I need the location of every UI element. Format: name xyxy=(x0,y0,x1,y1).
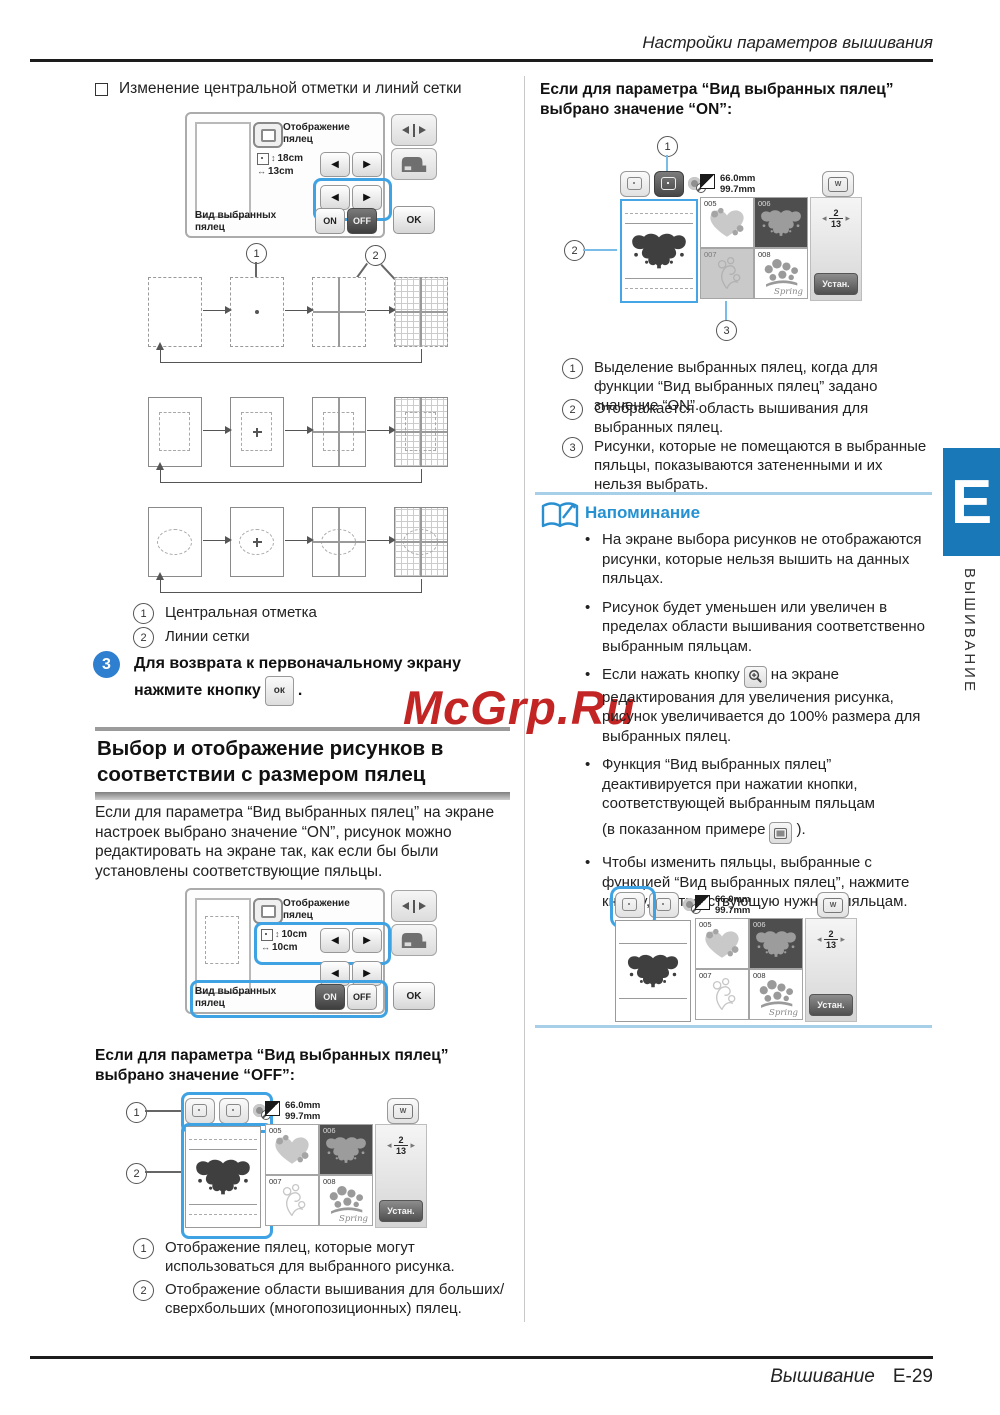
area-dash-bottom xyxy=(189,1214,257,1215)
page-total: 13 xyxy=(396,1146,406,1156)
width-arrow-icon: ↔ xyxy=(261,941,270,954)
frame-shape-grid xyxy=(394,507,448,577)
heart-design-icon xyxy=(705,204,749,242)
pattern-tile-005: 005 xyxy=(700,197,754,248)
footer-page-number: E-29 xyxy=(893,1366,933,1387)
dimension-icon xyxy=(695,895,710,910)
legend-number: 2 xyxy=(133,627,154,648)
move-right-icon xyxy=(419,902,426,910)
footer-rule xyxy=(30,1356,933,1359)
frame-cross-lines xyxy=(312,277,366,347)
pattern-tile-007: 007 xyxy=(695,969,749,1020)
width-arrow-icon: ↔ xyxy=(257,165,266,178)
hoop-w-button: W xyxy=(822,171,854,197)
pattern-tile-007-disabled: 007 xyxy=(700,248,754,299)
return-arrow xyxy=(160,349,422,363)
size-icon xyxy=(261,929,273,941)
floral-design-icon xyxy=(705,975,739,1015)
pattern-tile-008: 008Spring xyxy=(319,1175,373,1226)
return-arrow xyxy=(160,579,422,593)
grid-next-button: ▶ xyxy=(352,185,382,210)
flow-arrow xyxy=(367,310,389,311)
selected-hoop-view-label: Вид выбранных пялец xyxy=(195,210,307,234)
manual-page: Настройки параметров вышивания E ВЫШИВАН… xyxy=(0,0,1000,1415)
legend-item-off-1: 1 Отображение пялец, которые могут испол… xyxy=(133,1238,518,1276)
callout-1-line xyxy=(666,155,668,171)
area-dash-top xyxy=(625,213,693,214)
flow-arrow xyxy=(285,310,307,311)
heart-design-icon xyxy=(700,925,744,963)
hoop-w-icon: W xyxy=(393,1104,413,1119)
hoop-frame-icon xyxy=(656,898,671,911)
off-case-heading: Если для параметра “Вид выбранных пялец”… xyxy=(95,1046,515,1086)
callout-2: 2 xyxy=(126,1163,147,1184)
zoom-button xyxy=(744,666,767,688)
needle-bar-icon xyxy=(413,124,415,137)
page-next-icon: ▸ xyxy=(846,213,851,224)
frame-area-empty xyxy=(148,397,202,467)
ornament-design-icon xyxy=(758,207,804,239)
page-header-title: Настройки параметров вышивания xyxy=(530,33,933,53)
set-button: Устан. xyxy=(809,994,853,1016)
checkbox-heading-text: Изменение центральной отметки и линий се… xyxy=(119,80,462,98)
legend-number: 2 xyxy=(562,399,583,420)
side-panel: ◂ 213 ▸ Устан. xyxy=(805,918,857,1022)
size-next-button: ▶ xyxy=(352,152,382,177)
pattern-select-screen-on: 66.0mm99.7mm 005 006 007 008Spring ◂ 213… xyxy=(620,171,860,301)
page-next-icon: ▸ xyxy=(841,934,846,945)
section-title: Выбор и отображение рисунков в соответст… xyxy=(97,736,510,788)
pattern-tile-005: 005 xyxy=(695,918,749,969)
off-button-selected: OFF xyxy=(347,208,377,234)
flow-arrow xyxy=(203,540,225,541)
return-arrow xyxy=(160,469,422,483)
settings-panel: Отображение пялец ↕18cm ↔13cm ◀ ▶ ◀ ▶ Ви… xyxy=(185,112,385,238)
hoop-frame-icon xyxy=(661,177,676,190)
section-tab: E xyxy=(943,448,1000,556)
note-bullet: Функция “Вид выбранных пялец” деактивиру… xyxy=(585,755,932,844)
embroidery-band xyxy=(189,1149,257,1205)
flow-arrow xyxy=(203,310,225,311)
hoop-w-icon: W xyxy=(823,898,843,913)
pattern-size: 66.0mm99.7mm xyxy=(700,173,755,195)
step-instruction: Для возврата к первоначальному экрану на… xyxy=(134,652,506,706)
grid-prev-button: ◀ xyxy=(320,961,350,986)
legend-item-center-mark: 1 Центральная отметка xyxy=(133,603,503,624)
pattern-size: 66.0mm99.7mm xyxy=(265,1100,320,1122)
flow-arrow xyxy=(285,540,307,541)
section-intro: Если для параметра “Вид выбранных пялец”… xyxy=(95,803,507,881)
pattern-grid: 005 006 007 008Spring xyxy=(265,1124,373,1226)
section-tab-letter: E xyxy=(951,467,992,538)
sewing-machine-icon xyxy=(399,154,429,175)
pattern-tile-005: 005 xyxy=(265,1124,319,1175)
embroidery-area-outline xyxy=(205,916,239,964)
hoop-frame-icon xyxy=(622,898,637,911)
settings-screen-2: Отображение пялец ↕10cm ↔10cm ◀ ▶ ◀ ▶ Ви… xyxy=(185,888,437,1012)
off-button: OFF xyxy=(347,984,377,1010)
callout-2: 2 xyxy=(564,240,585,261)
pattern-size: 66.0mm99.7mm xyxy=(695,894,750,916)
frame-shape-empty xyxy=(148,507,202,577)
sewing-machine-button xyxy=(391,148,437,180)
hoop-w-button: W xyxy=(817,892,849,918)
legend-number: 2 xyxy=(133,1280,154,1301)
note-title: Напоминание xyxy=(585,503,700,523)
side-panel: ◂ 213 ▸ Устан. xyxy=(375,1124,427,1228)
heart-design-icon xyxy=(270,1131,314,1169)
checkbox-icon xyxy=(95,83,108,96)
hoop-large-button xyxy=(185,1098,215,1124)
selected-hoop-button xyxy=(769,822,792,844)
spring-design-icon xyxy=(759,257,803,291)
hoop-preview xyxy=(195,898,251,994)
callout-1: 1 xyxy=(657,136,678,157)
pattern-tile-007: 007 xyxy=(265,1175,319,1226)
step-number-badge: 3 xyxy=(93,651,120,678)
size-prev-button: ◀ xyxy=(320,928,350,953)
magnifier-plus-icon xyxy=(748,669,763,684)
callout-2: 2 xyxy=(365,245,386,266)
legend-item-on-2: 2 Отображается область вышивания для выб… xyxy=(562,399,934,437)
hoop-small-button-selected xyxy=(654,171,684,197)
area-dash-top xyxy=(189,1139,257,1140)
set-button: Устан. xyxy=(379,1200,423,1222)
hoop-large-button xyxy=(620,171,650,197)
hoop-icon xyxy=(253,898,283,924)
height-arrow-icon: ↕ xyxy=(275,928,280,941)
pattern-grid: 005 006 007 008Spring xyxy=(695,918,803,1020)
hoop-large-button xyxy=(615,892,645,918)
hoop-choice-buttons xyxy=(620,171,706,197)
legend-number: 1 xyxy=(133,1238,154,1259)
pattern-tile-006-selected: 006 xyxy=(754,197,808,248)
hoop-icon xyxy=(253,122,283,148)
pattern-tile-008: 008Spring xyxy=(754,248,808,299)
hoop-frame-icon xyxy=(192,1104,207,1117)
frame-shape-cross-lines xyxy=(312,507,366,577)
frame-empty xyxy=(148,277,202,347)
page-navigation: ◂ 213 ▸ xyxy=(806,929,856,950)
legend-number: 3 xyxy=(562,437,583,458)
flow-arrow xyxy=(367,540,389,541)
frame-area-center-mark xyxy=(230,397,284,467)
page-total: 13 xyxy=(826,940,836,950)
move-right-icon xyxy=(419,126,426,134)
ornament-design xyxy=(624,952,682,990)
grid-prev-button: ◀ xyxy=(320,185,350,210)
on-case-heading: Если для параметра “Вид выбранных пялец”… xyxy=(540,80,932,120)
page-current: 2 xyxy=(829,208,842,219)
page-next-icon: ▸ xyxy=(411,1140,416,1151)
hoop-inner-icon xyxy=(261,129,276,142)
callout-1-line xyxy=(145,1110,183,1112)
ornament-design-icon xyxy=(753,928,799,960)
size-icon xyxy=(257,153,269,165)
note-bullet: На экране выбора рисунков не отображаютс… xyxy=(585,530,932,589)
footer: ВышиваниеE-29 xyxy=(530,1366,933,1388)
sewing-machine-icon xyxy=(399,930,429,951)
on-button-selected: ON xyxy=(315,984,345,1010)
callout-1: 1 xyxy=(126,1102,147,1123)
size-next-button: ▶ xyxy=(352,928,382,953)
footer-section: Вышивание xyxy=(770,1366,875,1387)
pattern-select-screen-off: 66.0mm99.7mm 005 006 007 008Spring ◂ 213… xyxy=(185,1098,425,1228)
area-dash-bottom xyxy=(625,288,693,289)
hoop-inner-icon xyxy=(261,905,276,918)
legend-number: 1 xyxy=(133,603,154,624)
pattern-preview xyxy=(185,1126,261,1228)
ok-button: OK xyxy=(393,982,435,1010)
section-bar-top xyxy=(95,727,510,731)
hoop-preview xyxy=(195,122,251,218)
hoop-size-value: ↕18cm ↔13cm xyxy=(257,152,303,178)
dimension-icon xyxy=(700,174,715,189)
needle-bar-icon xyxy=(413,900,415,913)
ornament-design-icon xyxy=(323,1134,369,1166)
settings-screen-1: Отображение пялец ↕18cm ↔13cm ◀ ▶ ◀ ▶ Ви… xyxy=(185,112,437,236)
hoop-frame-icon xyxy=(627,177,642,190)
note-bullet: Если нажать кнопкуна экране редактирован… xyxy=(585,665,932,746)
hoop-w-icon: W xyxy=(828,177,848,192)
page-current: 2 xyxy=(824,929,837,940)
legend-item-off-2: 2 Отображение области вышивания для боль… xyxy=(133,1280,518,1318)
frame-shape-center-mark xyxy=(230,507,284,577)
callout-3-line xyxy=(725,301,727,320)
hoop-mini-icon xyxy=(774,828,787,839)
frame-area-cross-lines xyxy=(312,397,366,467)
embroidery-band xyxy=(625,223,693,279)
pattern-preview-highlighted xyxy=(620,199,698,303)
hoop-size-value: ↕10cm ↔10cm xyxy=(261,928,307,954)
selected-hoop-view-label: Вид выбранных пялец xyxy=(195,986,307,1010)
flow-arrow xyxy=(367,430,389,431)
pattern-tile-006-selected: 006 xyxy=(319,1124,373,1175)
callout-3: 3 xyxy=(716,320,737,341)
sewing-machine-button xyxy=(391,924,437,956)
section-bar-bottom xyxy=(95,792,510,800)
ok-button: OK xyxy=(393,206,435,234)
grid-next-button: ▶ xyxy=(352,961,382,986)
embroidery-vertical-label: ВЫШИВАНИЕ xyxy=(961,568,978,694)
ornament-design xyxy=(628,231,690,271)
note-bullet: Рисунок будет уменьшен или увеличен в пр… xyxy=(585,598,932,657)
legend-item-on-3: 3 Рисунки, которые не помещаются в выбра… xyxy=(562,437,934,494)
hoop-choice-buttons xyxy=(615,892,701,918)
on-button: ON xyxy=(315,208,345,234)
frame-area-grid xyxy=(394,397,448,467)
spring-design-icon xyxy=(324,1184,368,1218)
book-pencil-icon xyxy=(540,500,580,532)
embroidery-band xyxy=(619,943,687,999)
pattern-tile-006-selected: 006 xyxy=(749,918,803,969)
flow-arrow xyxy=(203,430,225,431)
header-rule xyxy=(30,59,933,62)
page-total: 13 xyxy=(831,219,841,229)
set-button: Устан. xyxy=(814,273,858,295)
checkbox-heading: Изменение центральной отметки и линий се… xyxy=(95,80,515,98)
note-bullet-list: На экране выбора рисунков не отображаютс… xyxy=(585,530,932,921)
height-arrow-icon: ↕ xyxy=(271,152,276,165)
hoop-w-button: W xyxy=(387,1098,419,1124)
page-navigation: ◂ 213 ▸ xyxy=(811,208,861,229)
ok-key-icon: ок xyxy=(265,676,294,706)
pattern-move-button xyxy=(391,890,437,922)
display-hoop-label: Отображение пялец xyxy=(283,898,377,922)
frame-center-mark xyxy=(230,277,284,347)
floral-design-icon xyxy=(710,254,744,294)
pattern-grid: 005 006 007 008Spring xyxy=(700,197,808,299)
note-top-border xyxy=(535,492,932,495)
hoop-small-button xyxy=(219,1098,249,1124)
spring-design-icon xyxy=(754,978,798,1012)
floral-design-icon xyxy=(275,1181,309,1221)
callout-2-line xyxy=(145,1171,181,1173)
hoop-small-button xyxy=(649,892,679,918)
move-left-icon xyxy=(402,126,409,134)
callout-1: 1 xyxy=(246,243,267,264)
pattern-tile-008: 008Spring xyxy=(749,969,803,1020)
pattern-preview xyxy=(615,920,691,1022)
hoop-choice-buttons xyxy=(185,1098,271,1124)
page-current: 2 xyxy=(394,1135,407,1146)
display-hoop-label: Отображение пялец xyxy=(283,122,377,146)
hoop-frame-icon xyxy=(226,1104,241,1117)
callout-2-line xyxy=(583,249,617,251)
page-prev-icon: ◂ xyxy=(822,213,827,224)
ornament-design xyxy=(192,1157,254,1197)
legend-number: 1 xyxy=(562,358,583,379)
dimension-icon xyxy=(265,1101,280,1116)
move-left-icon xyxy=(402,902,409,910)
pattern-select-screen-change-hoop: 66.0mm99.7mm 005 006 007 008Spring ◂ 213… xyxy=(615,892,855,1022)
center-mark-dot xyxy=(255,310,259,314)
page-navigation: ◂ 213 ▸ xyxy=(376,1135,426,1156)
side-panel: ◂ 213 ▸ Устан. xyxy=(810,197,862,301)
note-bottom-border xyxy=(535,1025,932,1028)
page-prev-icon: ◂ xyxy=(387,1140,392,1151)
frame-grid xyxy=(394,277,448,347)
page-prev-icon: ◂ xyxy=(817,934,822,945)
flow-arrow xyxy=(285,430,307,431)
pattern-move-button xyxy=(391,114,437,146)
size-prev-button: ◀ xyxy=(320,152,350,177)
settings-panel: Отображение пялец ↕10cm ↔10cm ◀ ▶ ◀ ▶ Ви… xyxy=(185,888,385,1014)
legend-item-grid-lines: 2 Линии сетки xyxy=(133,627,503,648)
